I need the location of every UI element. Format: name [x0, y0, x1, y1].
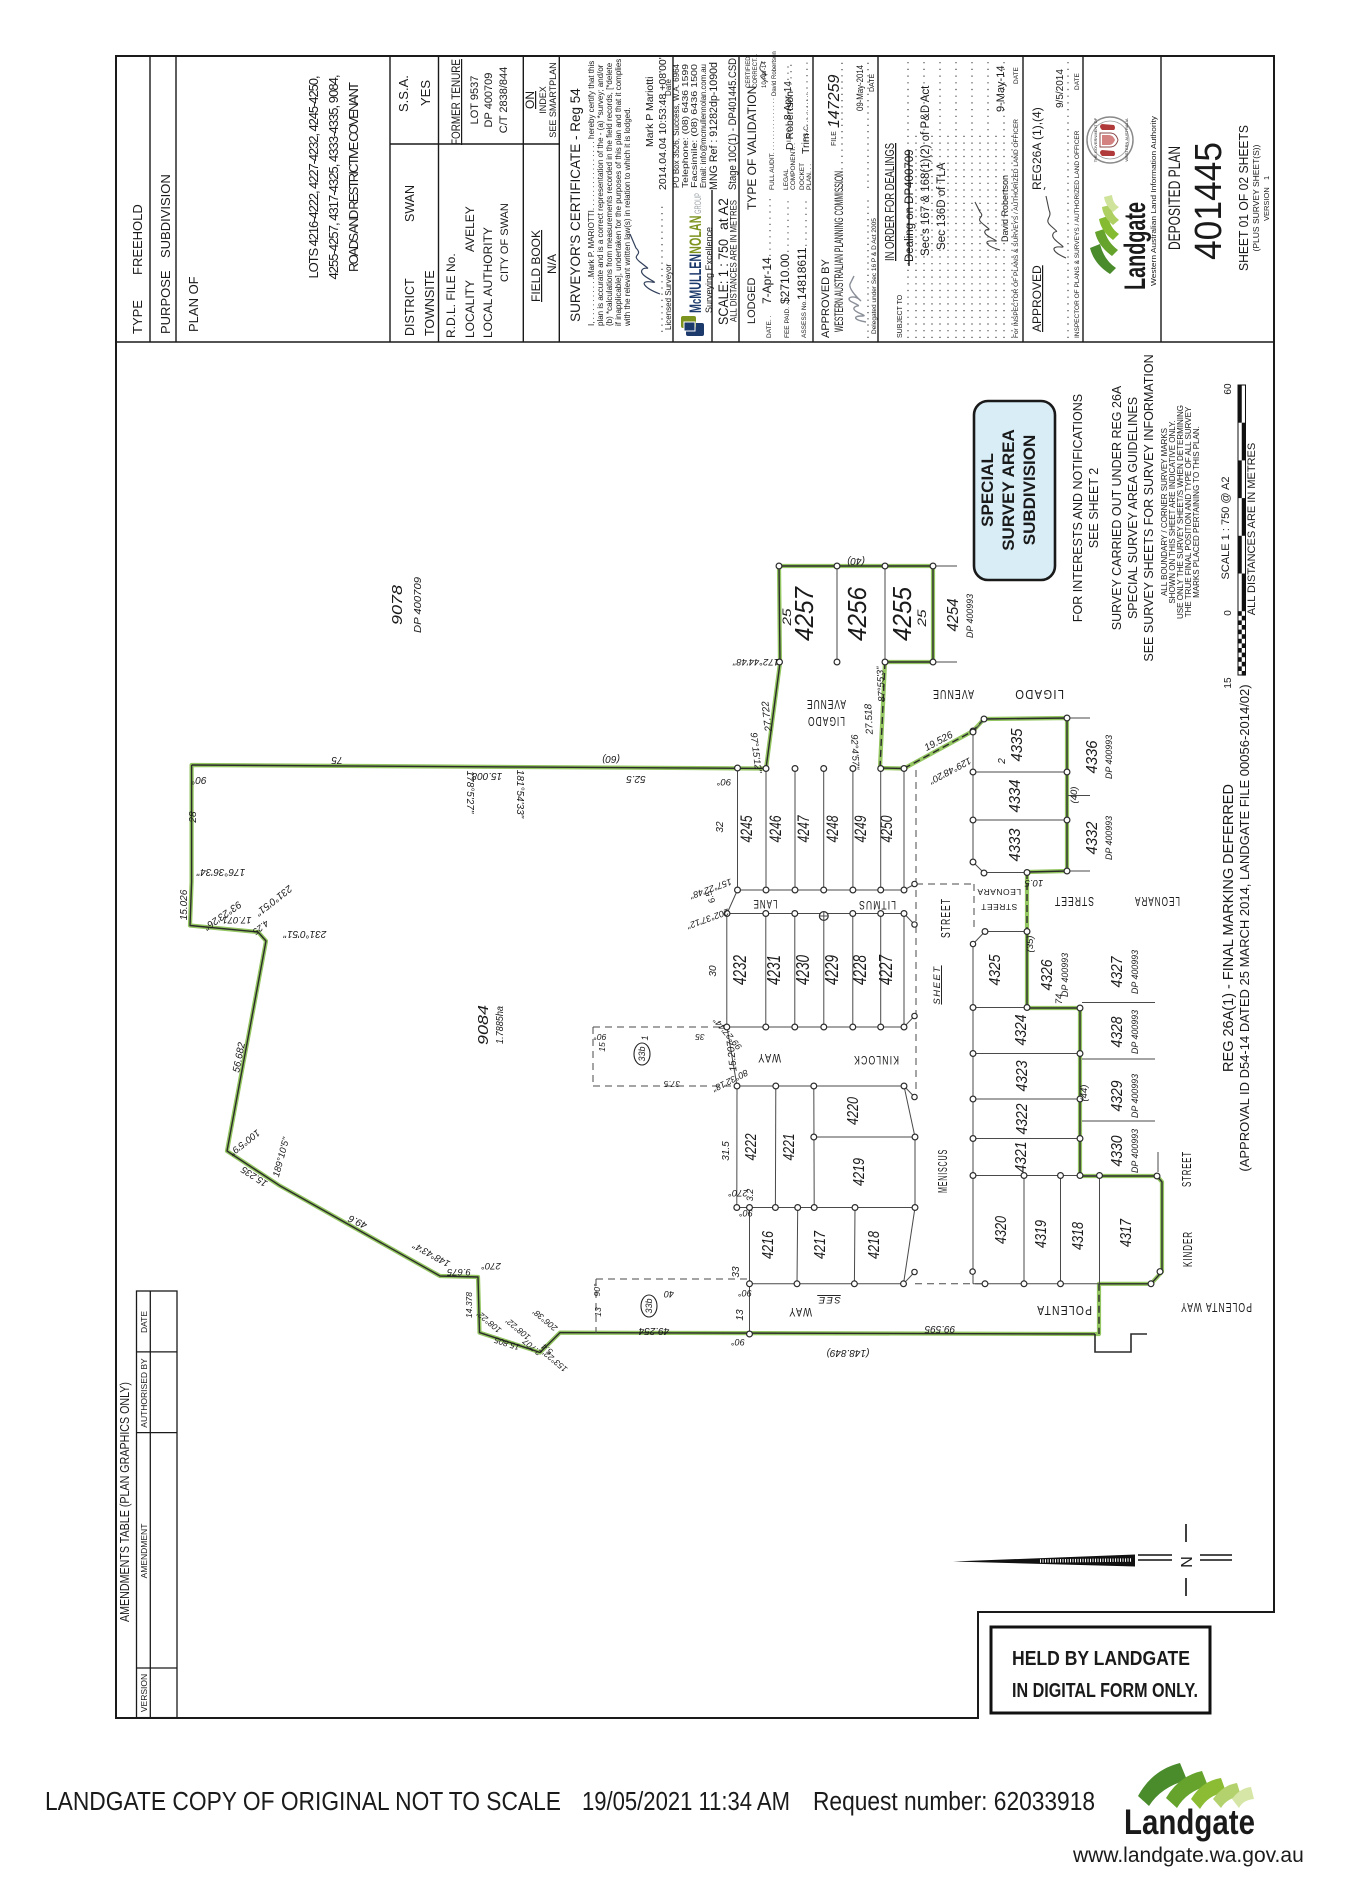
svg-text:VERSION: VERSION — [1262, 187, 1271, 221]
svg-text:DATE: DATE — [139, 1311, 149, 1333]
svg-text:189°10'5": 189°10'5" — [271, 1136, 292, 1179]
svg-text:14.378: 14.378 — [464, 1292, 474, 1318]
svg-text:DEPOSITED PLAN: DEPOSITED PLAN — [1166, 146, 1184, 250]
svg-text:(35): (35) — [1025, 936, 1036, 953]
svg-text:DP 400993: DP 400993 — [1104, 734, 1115, 779]
svg-text:ASSESS No. .: ASSESS No. . — [801, 296, 808, 338]
svg-text:LEONARA: LEONARA — [1134, 894, 1180, 909]
svg-text:SEE SMARTPLAN: SEE SMARTPLAN — [548, 62, 558, 137]
svg-text:DATE: DATE — [1013, 66, 1020, 84]
svg-text:APPROVED BY: APPROVED BY — [820, 258, 832, 338]
svg-text:4324: 4324 — [1013, 1014, 1030, 1045]
svg-text:SHEET: SHEET — [932, 965, 943, 1004]
svg-text:32: 32 — [715, 821, 726, 833]
svg-text:8-Apr-14: 8-Apr-14 — [783, 81, 794, 120]
svg-text:with the relevant written law(: with the relevant written law(s) in rela… — [623, 107, 632, 327]
svg-text:APPROVED: APPROVED — [1030, 265, 1044, 332]
svg-text:2: 2 — [997, 758, 1008, 765]
svg-text:17.071: 17.071 — [222, 914, 251, 925]
svg-text:DP 400993: DP 400993 — [1130, 1128, 1141, 1173]
svg-text:1: 1 — [640, 1035, 650, 1040]
svg-text:90°: 90° — [739, 1208, 753, 1218]
svg-text:TYPE: TYPE — [130, 300, 145, 334]
svg-text:4249: 4249 — [851, 815, 870, 842]
svg-text:15: 15 — [597, 1042, 607, 1052]
svg-text:Surveying Excellence: Surveying Excellence — [704, 227, 714, 313]
svg-text:AUTHORISED BY: AUTHORISED BY — [139, 1358, 149, 1428]
svg-text:90°: 90° — [717, 776, 732, 787]
svg-text:129°48'20": 129°48'20" — [927, 755, 973, 787]
svg-text:LITMUS: LITMUS — [858, 898, 896, 912]
svg-text:9084: 9084 — [475, 1005, 492, 1045]
svg-text:4335: 4335 — [1009, 728, 1026, 761]
svg-text:WAY: WAY — [757, 1051, 781, 1065]
svg-text:4228: 4228 — [850, 955, 870, 985]
svg-text:4230: 4230 — [793, 955, 813, 985]
svg-text:YES: YES — [418, 80, 433, 106]
svg-text:4217: 4217 — [812, 1230, 829, 1259]
svg-text:DATE. .: DATE. . — [766, 316, 773, 338]
svg-text:172°44'48": 172°44'48" — [732, 656, 779, 667]
svg-text:153°22': 153°22' — [541, 1348, 570, 1374]
svg-text:13: 13 — [593, 1307, 603, 1317]
svg-text:49.254: 49.254 — [638, 1325, 669, 1336]
svg-text:75: 75 — [331, 754, 343, 765]
svg-text:AMENDMENT: AMENDMENT — [139, 1524, 149, 1579]
svg-text:19/05/2021 11:34 AM: 19/05/2021 11:34 AM — [582, 1788, 790, 1816]
svg-text:SHEET 01 OF 02 SHEETS: SHEET 01 OF 02 SHEETS — [1237, 125, 1251, 271]
svg-text:99.595: 99.595 — [924, 1323, 955, 1334]
svg-text:4227: 4227 — [876, 954, 896, 985]
svg-text:4222: 4222 — [743, 1133, 760, 1160]
svg-text:(b) *calculations from measur: (b) *calculations from measurements reco… — [605, 62, 614, 326]
svg-text:HELD BY LANDGATE: HELD BY LANDGATE — [1012, 1648, 1190, 1670]
svg-text:MNG Ref : 91282dp-1090d: MNG Ref : 91282dp-1090d — [708, 62, 720, 190]
svg-text:31.5: 31.5 — [721, 1141, 732, 1161]
svg-text:176°36'34": 176°36'34" — [196, 866, 245, 877]
svg-text:INDEX: INDEX — [538, 86, 548, 114]
svg-text:THE GOVERNMENT OF: THE GOVERNMENT OF — [1093, 117, 1098, 162]
svg-text:S.S.A.: S.S.A. — [396, 75, 411, 112]
svg-text:SURVEY AREA: SURVEY AREA — [999, 429, 1018, 551]
svg-text:90°: 90° — [731, 1337, 745, 1347]
svg-text:2014.04.04 10:53:48 +08'00': 2014.04.04 10:53:48 +08'00' — [657, 57, 669, 190]
svg-text:SUBDIVISION: SUBDIVISION — [158, 174, 173, 258]
svg-text:SPECIAL SURVEY AREA GUIDELINES: SPECIAL SURVEY AREA GUIDELINES — [1126, 397, 1140, 619]
svg-text:INSPECTOR OF PLANS & SURVEYS /: INSPECTOR OF PLANS & SURVEYS / AUTHORIZE… — [1074, 130, 1081, 338]
svg-text:09-May-2014: 09-May-2014 — [855, 65, 865, 111]
svg-text:SURVEYOR'S CERTIFICATE - Reg 5: SURVEYOR'S CERTIFICATE - Reg 54 — [568, 88, 583, 322]
svg-text:SPECIAL: SPECIAL — [978, 453, 997, 527]
svg-text:FOR INTERESTS AND NOTIFICATION: FOR INTERESTS AND NOTIFICATIONS — [1071, 394, 1085, 622]
svg-text:SCALE 1 : 750 @ A2: SCALE 1 : 750 @ A2 — [1220, 477, 1232, 580]
svg-text:87°55'3": 87°55'3" — [875, 666, 888, 703]
svg-text:33b: 33b — [644, 1298, 654, 1313]
svg-text:4250: 4250 — [877, 815, 896, 842]
svg-text:4317: 4317 — [1118, 1218, 1135, 1247]
svg-text:92°4'57": 92°4'57" — [848, 734, 861, 771]
svg-text:4318: 4318 — [1070, 1222, 1087, 1250]
svg-text:LEONARA: LEONARA — [977, 887, 1021, 897]
svg-text:DP 400993: DP 400993 — [1130, 1073, 1141, 1118]
svg-text:POLENTA: POLENTA — [1036, 1303, 1092, 1318]
svg-text:$2710.00: $2710.00 — [778, 254, 792, 304]
svg-text:4247: 4247 — [794, 815, 813, 842]
svg-text:74: 74 — [1054, 994, 1065, 1005]
svg-text:270°: 270° — [481, 1260, 502, 1271]
svg-text:3.2: 3.2 — [745, 1189, 755, 1202]
svg-text:15.805: 15.805 — [493, 1335, 521, 1353]
svg-text:4219: 4219 — [851, 1158, 868, 1186]
svg-text:13: 13 — [735, 1309, 746, 1321]
svg-text:178°5'27": 178°5'27" — [464, 771, 475, 814]
svg-text:IN ORDER FOR DEALINGS: IN ORDER FOR DEALINGS — [882, 143, 897, 261]
svg-text:4246: 4246 — [766, 815, 785, 842]
svg-text:4332: 4332 — [1084, 821, 1101, 854]
svg-text:4325: 4325 — [987, 954, 1004, 985]
svg-text:FEE PAID. .: FEE PAID. . — [784, 303, 791, 338]
svg-text:(44): (44) — [1079, 1085, 1090, 1102]
svg-text:LOCALITY: LOCALITY — [463, 280, 477, 338]
svg-text:4216: 4216 — [760, 1231, 777, 1259]
svg-text:4328: 4328 — [1109, 1016, 1126, 1047]
svg-text:SEE SHEET 2: SEE SHEET 2 — [1087, 468, 1101, 548]
svg-text:LOT 9537: LOT 9537 — [469, 76, 481, 125]
svg-text:DP 400993: DP 400993 — [1104, 815, 1115, 860]
svg-text:SWAN: SWAN — [403, 185, 417, 222]
svg-text:4229: 4229 — [822, 955, 842, 985]
svg-text:Western Australian Land Inform: Western Australian Land Information Auth… — [1149, 116, 1158, 286]
svg-text:Sec 136D of TLA: Sec 136D of TLA — [936, 162, 948, 250]
svg-text:231°0'51": 231°0'51" — [283, 928, 327, 939]
svg-text:4231: 4231 — [764, 955, 784, 985]
svg-text:POLENTA WAY: POLENTA WAY — [1180, 1300, 1252, 1315]
svg-text:30: 30 — [708, 965, 719, 977]
svg-text:ROADS AND RESTRICTIVE COVENANT: ROADS AND RESTRICTIVE COVENANT — [346, 82, 361, 272]
svg-text:STREET: STREET — [1054, 894, 1094, 909]
svg-text:plan is accurate and is a corr: plan is accurate and is a correct repres… — [596, 64, 605, 326]
svg-text:Landgate: Landgate — [1124, 1803, 1255, 1842]
svg-text:206°38': 206°38' — [531, 1307, 560, 1334]
svg-text:4255: 4255 — [887, 586, 917, 641]
svg-text:25: 25 — [780, 608, 794, 627]
svg-text:LIGADO: LIGADO — [807, 714, 845, 729]
svg-text:FIELD BOOK: FIELD BOOK — [529, 230, 543, 302]
svg-text:www.landgate.wa.gov.au: www.landgate.wa.gov.au — [1072, 1844, 1304, 1867]
svg-text:FILE: FILE — [831, 131, 838, 146]
svg-text:TYPE OF VALIDATION: TYPE OF VALIDATION — [745, 86, 759, 210]
svg-text:N/A: N/A — [545, 254, 559, 274]
svg-text:DATE: DATE — [869, 74, 876, 92]
svg-text:WESTERN AUSTRALIA: WESTERN AUSTRALIA — [1124, 118, 1129, 161]
svg-text:1: 1 — [1262, 176, 1271, 180]
svg-text:STREET: STREET — [1179, 1151, 1194, 1187]
svg-text:(PLUS SURVEY SHEET(S)): (PLUS SURVEY SHEET(S)) — [1251, 144, 1261, 251]
svg-text:4321: 4321 — [1013, 1142, 1030, 1173]
svg-text:90°: 90° — [593, 1032, 606, 1042]
svg-text:(60): (60) — [602, 753, 620, 764]
svg-text:Dealing on DP400709: Dealing on DP400709 — [904, 149, 916, 262]
svg-text:LEGAL: LEGAL — [783, 169, 790, 190]
svg-text:4327: 4327 — [1109, 956, 1126, 988]
svg-text:AVELEY: AVELEY — [463, 206, 477, 252]
svg-text:4329: 4329 — [1109, 1080, 1126, 1111]
svg-text:Sec's 167 & 168(1)(2) of P: Sec's 167 & 168(1)(2) of P&D Act — [920, 85, 932, 256]
svg-text:CITY OF SWAN: CITY OF SWAN — [499, 203, 511, 282]
svg-text:Stage 10C(1) - DP401445.CSD: Stage 10C(1) - DP401445.CSD — [727, 58, 739, 190]
svg-text:Licensed Surveyor: Licensed Surveyor — [664, 263, 673, 330]
svg-text:4255-4257, 4317-4325, 4333-433: 4255-4257, 4317-4325, 4333-4335, 9084, — [326, 75, 341, 280]
svg-text:MARKS PLACED PERTAINING TO THI: MARKS PLACED PERTAINING TO THIS PLAN. — [1192, 426, 1201, 598]
svg-text:108°22': 108°22' — [504, 1316, 533, 1342]
svg-text:DP 400709: DP 400709 — [483, 73, 495, 128]
svg-text:(148.849): (148.849) — [827, 1347, 870, 1358]
svg-text:ALL DISTANCES ARE IN METRES: ALL DISTANCES ARE IN METRES — [1246, 443, 1258, 615]
svg-text:REG 26A(1) - FINAL MARKING DEF: REG 26A(1) - FINAL MARKING DEFERRED — [1221, 784, 1237, 1072]
svg-text:15: 15 — [1223, 677, 1234, 689]
svg-text:35: 35 — [695, 1032, 705, 1042]
svg-text:Landgate: Landgate — [1119, 202, 1152, 290]
svg-text:Mark P Mariotti: Mark P Mariotti — [644, 77, 656, 147]
svg-text:DP 400709: DP 400709 — [412, 577, 424, 633]
svg-text:R.D.L. FILE No.: R.D.L. FILE No. — [444, 253, 458, 338]
svg-text:F.S.C. . . . . . . . . .: F.S.C. . . . . . . . . . — [803, 92, 810, 142]
svg-text:KINLOCK: KINLOCK — [853, 1053, 899, 1067]
svg-text:if inapplicable], undertaken f: if inapplicable], undertaken for the pur… — [614, 59, 623, 326]
svg-text:9.675: 9.675 — [446, 1266, 470, 1277]
svg-text:TOWNSITE: TOWNSITE — [423, 270, 437, 336]
svg-text:4256: 4256 — [842, 586, 872, 641]
svg-text:33: 33 — [731, 1266, 742, 1278]
svg-text:Request number: 62033918: Request number: 62033918 — [813, 1788, 1095, 1816]
svg-text:4330: 4330 — [1109, 1135, 1126, 1166]
svg-text:4333: 4333 — [1007, 828, 1024, 861]
svg-text:4336: 4336 — [1084, 740, 1101, 773]
svg-text:40: 40 — [664, 1289, 674, 1299]
svg-text:4248: 4248 — [823, 815, 842, 842]
svg-text:4245: 4245 — [737, 815, 756, 842]
svg-text:90°: 90° — [738, 1288, 752, 1298]
svg-text:AMENDMENTS TABLE (PLAN GRAPHI: AMENDMENTS TABLE (PLAN GRAPHICS ONLY) — [117, 1382, 132, 1622]
svg-text:DP 400993: DP 400993 — [1130, 1009, 1141, 1054]
svg-text:SEE SURVEY SHEETS FOR SURVEY I: SEE SURVEY SHEETS FOR SURVEY INFORMATION — [1142, 354, 1156, 661]
svg-text:I, . . . . . . . . . .Mark P.: I, . . . . . . . . . .Mark P. MARIOTTI. … — [587, 61, 596, 326]
svg-text:0: 0 — [1223, 610, 1234, 616]
svg-text:4232: 4232 — [730, 955, 750, 985]
svg-text:49.6: 49.6 — [346, 1212, 369, 1230]
svg-text:C/T 2838/844: C/T 2838/844 — [498, 67, 510, 133]
svg-text:DP 400993: DP 400993 — [965, 593, 976, 638]
svg-text:DOCKET: DOCKET — [799, 163, 806, 190]
svg-text:37.5: 37.5 — [663, 1079, 680, 1089]
svg-text:4322: 4322 — [1014, 1103, 1031, 1134]
svg-text:10.5: 10.5 — [1024, 877, 1043, 888]
svg-text:1.7885ha: 1.7885ha — [494, 1006, 506, 1044]
svg-text:33b: 33b — [637, 1046, 647, 1061]
svg-text:FREEHOLD: FREEHOLD — [130, 204, 145, 275]
svg-text:I.S.C. .: I.S.C. . — [786, 122, 793, 142]
svg-text:For INSPECTOR OF PLANS & SURVE: For INSPECTOR OF PLANS & SURVEYS / AUTHO… — [1013, 119, 1020, 338]
svg-text:CERTIFIED: CERTIFIED — [746, 56, 752, 88]
svg-text:REG26A (1),(4): REG26A (1),(4) — [1030, 107, 1044, 190]
svg-text:15.026: 15.026 — [179, 889, 190, 920]
svg-text:SEE: SEE — [817, 1294, 841, 1305]
svg-text:VERSION: VERSION — [139, 1674, 149, 1712]
svg-text:Delegated under Sec 16 P & D A: Delegated under Sec 16 P & D Act 2005 — [871, 218, 878, 334]
svg-text:181°54'33": 181°54'33" — [514, 770, 525, 819]
svg-text:4221: 4221 — [781, 1134, 798, 1161]
svg-text:LODGED: LODGED — [746, 277, 758, 324]
svg-text:SUBJECT TO: SUBJECT TO — [897, 294, 904, 338]
svg-text:147259: 147259 — [826, 75, 843, 128]
svg-text:PURPOSE: PURPOSE — [158, 270, 173, 334]
svg-text:WESTERN AUSTRALIAN PLANNING CO: WESTERN AUSTRALIAN PLANNING COMMISSION — [834, 171, 846, 332]
svg-text:AVENUE: AVENUE — [932, 687, 974, 702]
svg-text:KINDER: KINDER — [1180, 1231, 1195, 1267]
svg-text:60: 60 — [1223, 383, 1234, 395]
svg-text:MENISCUS: MENISCUS — [935, 1149, 950, 1193]
svg-text:LIGADO: LIGADO — [1014, 687, 1064, 702]
svg-text:401445: 401445 — [1188, 142, 1230, 260]
svg-text:231°0'51": 231°0'51" — [253, 882, 295, 918]
svg-text:STREET: STREET — [938, 898, 953, 938]
svg-text:WAY: WAY — [788, 1305, 812, 1319]
svg-text:SUBDIVISION: SUBDIVISION — [1020, 435, 1039, 546]
svg-text:CORRECT. .: CORRECT. . — [753, 54, 759, 88]
svg-text:4320: 4320 — [993, 1216, 1010, 1244]
svg-text:14818611: 14818611 — [795, 247, 809, 300]
svg-text:28: 28 — [188, 811, 199, 824]
svg-text:LOTS 4216-4222, 4227-4232, 424: LOTS 4216-4222, 4227-4232, 4245-4250, — [306, 76, 321, 279]
svg-text:LANE: LANE — [753, 897, 778, 911]
svg-text:90°: 90° — [191, 774, 206, 785]
svg-text:4.25: 4.25 — [250, 918, 271, 937]
svg-text:(40): (40) — [847, 555, 865, 566]
svg-text:(APPROVAL ID D54-14 DATED 25 M: (APPROVAL ID D54-14 DATED 25 MARCH 2014,… — [1237, 684, 1252, 1171]
svg-text:9-May-14: 9-May-14 — [995, 66, 1007, 112]
svg-text:4334: 4334 — [1007, 779, 1024, 812]
svg-text:4220: 4220 — [845, 1097, 862, 1125]
svg-text:Email: info@mcmullennolan.com.: Email: info@mcmullennolan.com.au — [698, 64, 708, 188]
svg-text:LOCAL AUTHORITY: LOCAL AUTHORITY — [481, 227, 495, 338]
svg-text:4326: 4326 — [1039, 959, 1056, 990]
svg-text:27.518: 27.518 — [863, 703, 876, 736]
svg-text:DP 400993: DP 400993 — [1130, 949, 1141, 994]
svg-text:N: N — [1179, 1556, 1196, 1568]
svg-text:AVENUE: AVENUE — [806, 697, 846, 712]
svg-text:9078: 9078 — [389, 584, 406, 625]
svg-text:DP 400993: DP 400993 — [1060, 952, 1071, 997]
svg-text:STREET: STREET — [981, 902, 1018, 912]
svg-text:90°: 90° — [592, 1283, 602, 1296]
svg-text:ON: ON — [523, 91, 537, 109]
svg-text:David Robertson: David Robertson — [1000, 175, 1010, 242]
svg-text:10-Apr-14: 10-Apr-14 — [762, 61, 768, 88]
svg-text:David Robertson: David Robertson — [772, 51, 778, 96]
svg-text:9/5/2014: 9/5/2014 — [1055, 69, 1066, 108]
svg-text:25: 25 — [915, 609, 929, 628]
svg-text:DATE: DATE — [1074, 72, 1081, 90]
svg-text:(40): (40) — [1069, 787, 1080, 804]
svg-text:DISTRICT: DISTRICT — [403, 278, 417, 336]
svg-text:4218: 4218 — [866, 1231, 883, 1259]
svg-text:IN DIGITAL FORM ONLY.: IN DIGITAL FORM ONLY. — [1012, 1680, 1198, 1702]
svg-text:52.5: 52.5 — [626, 773, 646, 784]
svg-text:FULL AUDIT. . . . . . . . . .: FULL AUDIT. . . . . . . . . . . . . . . … — [769, 91, 776, 190]
svg-text:LANDGATE COPY OF ORIGINAL NOT: LANDGATE COPY OF ORIGINAL NOT TO SCALE — [45, 1788, 561, 1816]
svg-text:PLAN OF: PLAN OF — [186, 276, 201, 332]
svg-text:7-Apr-14: 7-Apr-14 — [760, 257, 774, 304]
svg-text:4319: 4319 — [1033, 1220, 1050, 1248]
svg-text:PLAN. . .: PLAN. . . — [806, 164, 813, 190]
svg-text:McMULLENNOLAN GROUP: McMULLENNOLAN GROUP — [686, 193, 705, 313]
svg-text:FORMER TENURE: FORMER TENURE — [449, 59, 463, 145]
svg-text:ALL DISTANCES ARE IN METRES: ALL DISTANCES ARE IN METRES — [729, 200, 740, 322]
svg-text:4254: 4254 — [945, 598, 962, 631]
svg-text:4323: 4323 — [1014, 1060, 1031, 1091]
svg-text:SURVEY CARRIED OUT UNDER REG 2: SURVEY CARRIED OUT UNDER REG 26A — [1110, 385, 1124, 630]
svg-text:202°37'12": 202°37'12" — [685, 906, 731, 931]
